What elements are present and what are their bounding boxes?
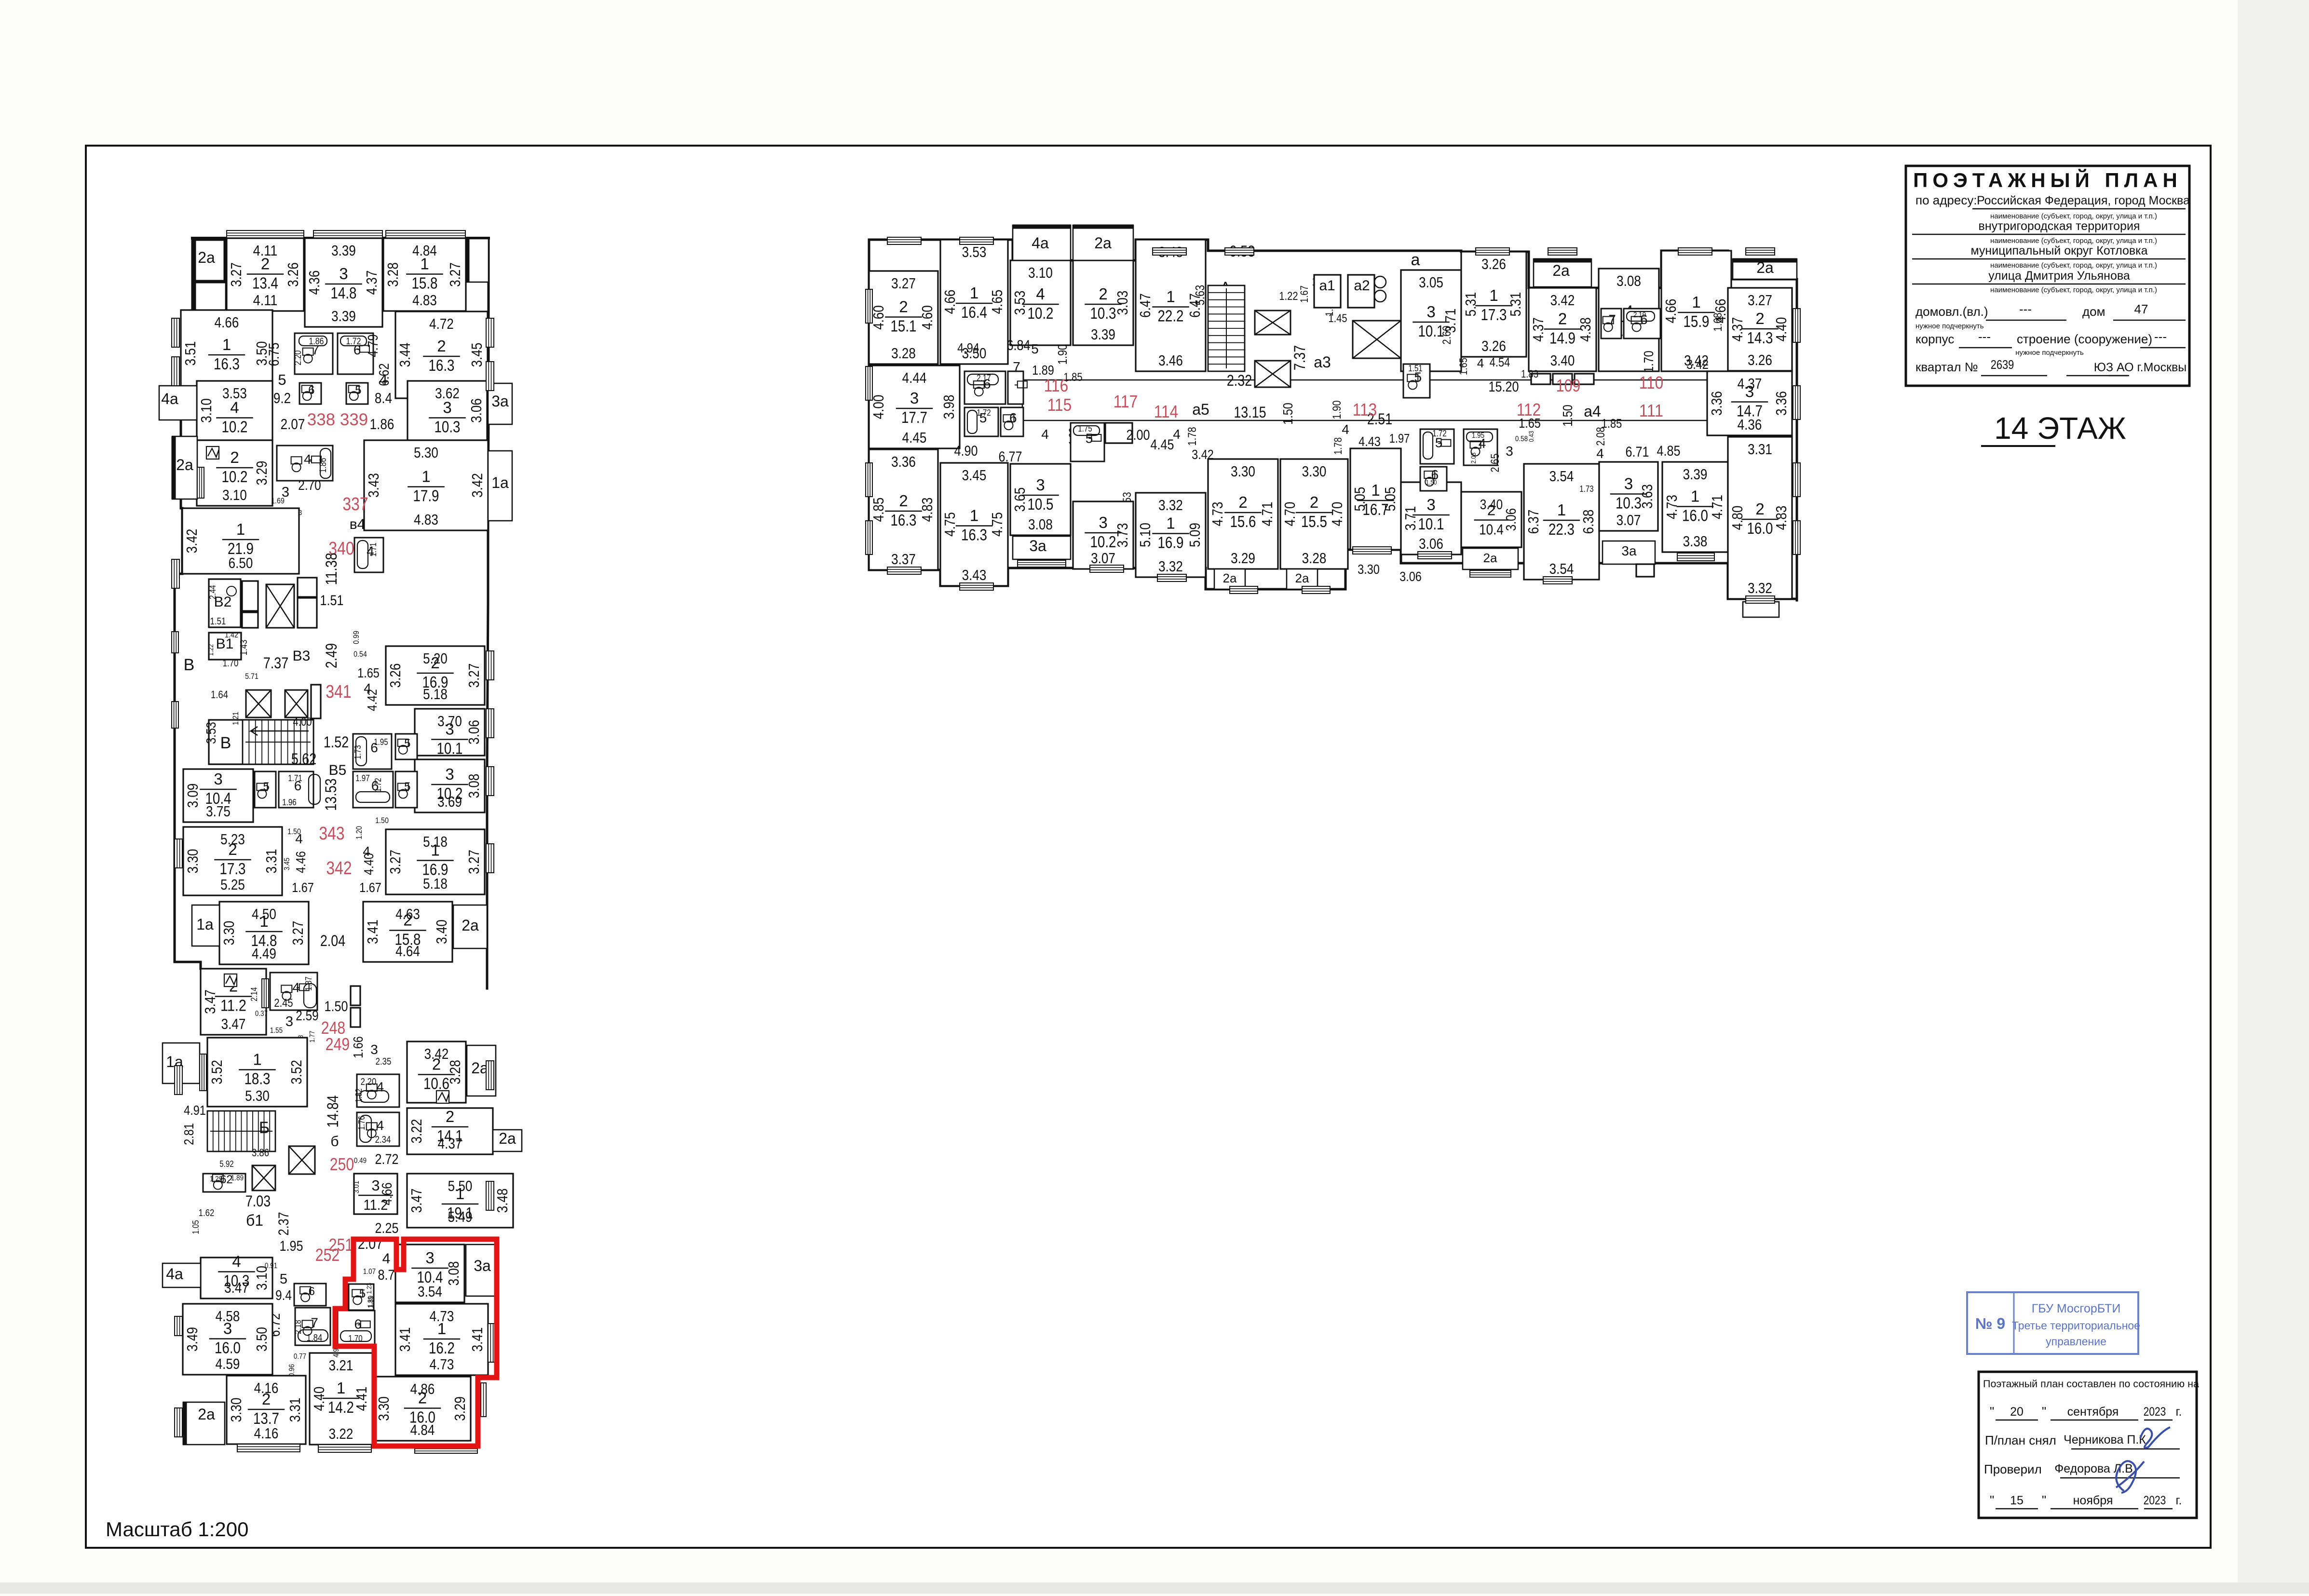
- svg-text:3.28: 3.28: [447, 1060, 463, 1084]
- svg-text:4а: 4а: [1032, 234, 1049, 252]
- svg-text:1.75: 1.75: [1078, 424, 1092, 433]
- svg-text:3.07: 3.07: [1091, 550, 1115, 567]
- svg-text:15.1: 15.1: [891, 317, 917, 335]
- svg-text:нужное подчеркнуть: нужное подчеркнуть: [1915, 322, 1984, 330]
- svg-text:5.23: 5.23: [220, 831, 245, 848]
- svg-text:3.31: 3.31: [263, 849, 280, 874]
- svg-text:1.96: 1.96: [282, 798, 296, 807]
- svg-text:17.3: 17.3: [1481, 306, 1507, 324]
- svg-text:3.08: 3.08: [1616, 272, 1641, 289]
- svg-text:а2: а2: [1354, 278, 1370, 294]
- svg-text:4.91: 4.91: [184, 1103, 206, 1118]
- svg-text:2.00: 2.00: [1126, 427, 1150, 443]
- svg-text:3.08: 3.08: [445, 1261, 462, 1286]
- svg-text:5.71: 5.71: [245, 672, 258, 681]
- svg-text:16.3: 16.3: [891, 511, 917, 529]
- svg-text:дом: дом: [2082, 304, 2105, 319]
- svg-text:3.30: 3.30: [184, 849, 201, 874]
- svg-text:1.51: 1.51: [210, 616, 226, 627]
- svg-text:3.43: 3.43: [962, 567, 987, 583]
- svg-text:6.47: 6.47: [1137, 293, 1154, 318]
- svg-text:Масштаб 1:200: Масштаб 1:200: [106, 1518, 248, 1541]
- svg-text:3.07: 3.07: [1616, 512, 1641, 528]
- svg-text:9.2: 9.2: [273, 390, 291, 406]
- svg-text:1: 1: [970, 284, 978, 302]
- svg-text:2.03: 2.03: [1469, 452, 1477, 463]
- svg-text:Федорова Л.В.: Федорова Л.В.: [2054, 1462, 2136, 1475]
- svg-text:3.30: 3.30: [220, 921, 237, 946]
- svg-text:4: 4: [1342, 422, 1349, 437]
- svg-text:16.9: 16.9: [1158, 534, 1184, 552]
- svg-text:1.67: 1.67: [359, 880, 381, 895]
- svg-text:0.49: 0.49: [354, 1157, 367, 1165]
- svg-text:1а: 1а: [196, 916, 214, 933]
- svg-text:5.50: 5.50: [448, 1177, 473, 1194]
- svg-text:3.27: 3.27: [228, 262, 244, 287]
- svg-text:3: 3: [1036, 476, 1045, 494]
- svg-text:3.30: 3.30: [1231, 463, 1255, 480]
- svg-text:В5: В5: [329, 762, 347, 778]
- svg-text:6.71: 6.71: [1625, 444, 1649, 460]
- svg-text:5.92: 5.92: [219, 1159, 233, 1169]
- svg-text:3.98: 3.98: [940, 395, 957, 419]
- svg-text:0.43: 0.43: [1527, 431, 1535, 442]
- svg-text:1.07: 1.07: [363, 1268, 376, 1276]
- svg-text:5.62: 5.62: [291, 750, 316, 768]
- svg-text:4: 4: [232, 1253, 241, 1271]
- svg-text:4.45: 4.45: [902, 429, 927, 446]
- svg-text:2а: 2а: [198, 1406, 215, 1423]
- svg-text:1.72: 1.72: [346, 337, 361, 347]
- svg-text:3.53: 3.53: [204, 722, 218, 744]
- svg-text:П/план снял: П/план снял: [1985, 1433, 2056, 1447]
- svg-text:10.2: 10.2: [222, 418, 248, 436]
- svg-text:1.86: 1.86: [318, 458, 328, 473]
- svg-text:1.50: 1.50: [1560, 405, 1575, 427]
- svg-text:4.85: 4.85: [870, 498, 887, 522]
- svg-text:1.50: 1.50: [287, 827, 301, 836]
- svg-text:3.44: 3.44: [396, 343, 413, 367]
- svg-text:3.40: 3.40: [433, 920, 450, 944]
- svg-text:6: 6: [354, 1316, 362, 1331]
- svg-text:1.70: 1.70: [1641, 351, 1656, 373]
- svg-text:а4: а4: [1584, 403, 1601, 420]
- svg-text:1.69: 1.69: [271, 496, 285, 505]
- svg-text:муниципальный округ Котловка: муниципальный округ Котловка: [1970, 244, 2147, 257]
- svg-text:114: 114: [1154, 402, 1178, 421]
- svg-text:Б: Б: [259, 1119, 270, 1137]
- svg-text:внутригородская территория: внутригородская территория: [1979, 219, 2140, 233]
- svg-text:В3: В3: [293, 648, 311, 664]
- svg-text:13.53: 13.53: [322, 778, 340, 811]
- svg-text:1.71: 1.71: [368, 542, 378, 556]
- svg-text:4: 4: [382, 1251, 391, 1267]
- svg-text:2.32: 2.32: [1227, 372, 1252, 389]
- svg-text:1: 1: [337, 1379, 345, 1397]
- svg-text:3.49: 3.49: [184, 1327, 201, 1352]
- svg-text:1.22: 1.22: [1279, 290, 1298, 303]
- svg-text:3: 3: [285, 1014, 293, 1029]
- svg-text:4.16: 4.16: [254, 1380, 279, 1396]
- svg-text:0.58: 0.58: [1515, 435, 1528, 443]
- svg-text:4.83: 4.83: [919, 498, 936, 522]
- svg-text:3.29: 3.29: [1231, 550, 1255, 567]
- svg-text:3.05: 3.05: [1419, 274, 1443, 291]
- svg-text:18.3: 18.3: [244, 1070, 271, 1088]
- svg-text:3.42: 3.42: [424, 1045, 449, 1062]
- svg-text:4.42: 4.42: [365, 689, 380, 711]
- svg-text:3.26: 3.26: [387, 663, 404, 688]
- svg-text:3.28: 3.28: [384, 262, 401, 287]
- svg-text:3.21: 3.21: [329, 1357, 353, 1374]
- svg-text:3.27: 3.27: [289, 921, 306, 946]
- svg-text:": ": [2042, 1493, 2046, 1507]
- svg-text:14.3: 14.3: [1747, 329, 1773, 347]
- svg-text:2.20: 2.20: [361, 1077, 377, 1087]
- svg-text:1.85: 1.85: [1063, 371, 1082, 384]
- svg-text:4а: 4а: [166, 1265, 183, 1283]
- svg-text:3.22: 3.22: [408, 1119, 425, 1144]
- svg-text:3.06: 3.06: [1419, 535, 1443, 552]
- svg-text:Черникова П.К.: Черникова П.К.: [2064, 1433, 2149, 1447]
- svg-text:4.75: 4.75: [941, 512, 958, 537]
- svg-text:1.50: 1.50: [1426, 478, 1437, 486]
- svg-text:3.42: 3.42: [183, 529, 200, 554]
- svg-text:14.8: 14.8: [331, 284, 357, 302]
- svg-text:5.18: 5.18: [423, 686, 448, 703]
- svg-text:3а: 3а: [491, 392, 509, 410]
- svg-text:7.37: 7.37: [1291, 345, 1308, 370]
- svg-text:3.10: 3.10: [1028, 264, 1053, 281]
- svg-text:2: 2: [230, 448, 239, 466]
- svg-text:1.43: 1.43: [239, 640, 249, 656]
- svg-text:9.4: 9.4: [275, 1288, 292, 1303]
- svg-text:4.37: 4.37: [363, 271, 380, 295]
- svg-text:3.48: 3.48: [494, 1189, 511, 1213]
- svg-text:2а: 2а: [1483, 551, 1497, 565]
- svg-text:2: 2: [446, 1108, 454, 1125]
- svg-text:2639: 2639: [1991, 357, 2014, 372]
- svg-text:4.73: 4.73: [430, 1356, 454, 1373]
- svg-text:4: 4: [1041, 427, 1049, 442]
- svg-text:7.37: 7.37: [263, 654, 288, 672]
- svg-text:5: 5: [280, 1271, 287, 1287]
- svg-text:4.66: 4.66: [380, 1182, 395, 1205]
- svg-text:1.78: 1.78: [1332, 437, 1344, 455]
- svg-text:4.11: 4.11: [253, 242, 278, 259]
- svg-text:5.25: 5.25: [220, 876, 245, 893]
- svg-text:1.50: 1.50: [375, 816, 389, 825]
- svg-text:1.65: 1.65: [357, 665, 380, 680]
- svg-text:3.31: 3.31: [286, 1398, 303, 1422]
- svg-text:1.86: 1.86: [370, 416, 394, 433]
- svg-text:---: ---: [2019, 302, 2032, 316]
- svg-text:6: 6: [308, 384, 314, 397]
- svg-text:10.2: 10.2: [1028, 304, 1054, 322]
- svg-text:3: 3: [445, 765, 454, 783]
- svg-text:16.4: 16.4: [961, 303, 987, 321]
- svg-text:3.51: 3.51: [182, 341, 199, 366]
- svg-text:2023: 2023: [2144, 1494, 2166, 1507]
- svg-text:10.2: 10.2: [222, 468, 248, 486]
- svg-text:3.31: 3.31: [1748, 441, 1772, 458]
- svg-text:1.22: 1.22: [207, 644, 215, 656]
- svg-text:4.90: 4.90: [954, 443, 978, 459]
- svg-text:10.3: 10.3: [1090, 304, 1116, 322]
- svg-text:3.09: 3.09: [184, 784, 201, 808]
- svg-text:1: 1: [1692, 293, 1700, 311]
- svg-text:4.60: 4.60: [919, 305, 936, 330]
- svg-text:3.28: 3.28: [1302, 550, 1327, 567]
- svg-text:3.27: 3.27: [465, 663, 482, 688]
- svg-text:1.66: 1.66: [351, 1036, 366, 1058]
- svg-text:2.70: 2.70: [298, 478, 321, 493]
- svg-text:3.42: 3.42: [1550, 292, 1575, 309]
- svg-text:2а: 2а: [198, 249, 215, 266]
- svg-text:4.94: 4.94: [957, 340, 979, 355]
- svg-text:3.41: 3.41: [364, 920, 381, 944]
- svg-text:2а: 2а: [499, 1130, 516, 1147]
- svg-text:3.03: 3.03: [1114, 291, 1131, 315]
- svg-text:3.47: 3.47: [202, 989, 218, 1014]
- svg-text:4.70: 4.70: [1281, 502, 1298, 527]
- svg-text:115: 115: [1047, 395, 1072, 415]
- svg-text:3.10: 3.10: [222, 487, 247, 503]
- svg-text:4.80: 4.80: [1729, 506, 1746, 530]
- svg-text:улица Дмитрия Ульянова: улица Дмитрия Ульянова: [1988, 269, 2130, 283]
- svg-text:10.3: 10.3: [1616, 494, 1642, 512]
- svg-text:2: 2: [1310, 493, 1318, 511]
- svg-text:1.68: 1.68: [1711, 312, 1725, 331]
- svg-text:4.71: 4.71: [1259, 502, 1276, 527]
- svg-text:2023: 2023: [2144, 1405, 2166, 1419]
- svg-text:8.4: 8.4: [375, 390, 392, 406]
- svg-text:1.77: 1.77: [308, 1031, 316, 1043]
- svg-text:наименование (субъект, город,: наименование (субъект, город, округ, ули…: [1990, 286, 2157, 294]
- svg-text:4.65: 4.65: [989, 290, 1005, 314]
- svg-text:---: ---: [1978, 329, 1991, 344]
- svg-text:3: 3: [371, 1177, 380, 1194]
- svg-text:2.60: 2.60: [1440, 325, 1453, 344]
- svg-text:3а: 3а: [474, 1257, 491, 1274]
- svg-text:14.84: 14.84: [324, 1095, 341, 1127]
- svg-text:1.65: 1.65: [1457, 358, 1469, 375]
- svg-text:2.17: 2.17: [977, 373, 991, 383]
- svg-text:4.59: 4.59: [216, 1355, 240, 1372]
- svg-text:2а: 2а: [176, 456, 193, 473]
- svg-text:3.73: 3.73: [1114, 523, 1131, 548]
- svg-text:1.70: 1.70: [223, 658, 239, 669]
- svg-text:4.73: 4.73: [1209, 502, 1226, 527]
- svg-text:2: 2: [1755, 500, 1764, 518]
- svg-text:2.37: 2.37: [276, 1212, 292, 1235]
- svg-text:ПОЭТАЖНЫЙ ПЛАН: ПОЭТАЖНЫЙ ПЛАН: [1913, 168, 2182, 191]
- svg-text:5: 5: [404, 737, 410, 750]
- svg-text:2.35: 2.35: [376, 1056, 392, 1067]
- svg-text:4.37: 4.37: [1729, 317, 1746, 342]
- svg-text:1.97: 1.97: [355, 773, 369, 783]
- svg-text:сентября: сентября: [2067, 1405, 2119, 1419]
- svg-text:3.42: 3.42: [469, 473, 486, 498]
- svg-text:3.47: 3.47: [224, 1279, 249, 1296]
- svg-text:3.30: 3.30: [375, 1396, 392, 1421]
- svg-text:4.38: 4.38: [1577, 317, 1594, 342]
- svg-text:4.66: 4.66: [941, 290, 958, 314]
- svg-text:4.73: 4.73: [1663, 495, 1680, 519]
- svg-text:3.63: 3.63: [1639, 484, 1656, 509]
- svg-text:3.41: 3.41: [396, 1327, 413, 1352]
- svg-text:3.10: 3.10: [198, 398, 215, 423]
- svg-text:4.11: 4.11: [253, 292, 278, 309]
- svg-text:3.75: 3.75: [206, 803, 231, 820]
- svg-text:14 ЭТАЖ: 14 ЭТАЖ: [1994, 411, 2126, 446]
- svg-text:3.32: 3.32: [1158, 558, 1183, 575]
- svg-text:2.04: 2.04: [320, 932, 345, 949]
- svg-text:4.71: 4.71: [1709, 495, 1725, 519]
- svg-text:3: 3: [1426, 303, 1435, 321]
- svg-text:1.50: 1.50: [1280, 403, 1295, 425]
- svg-text:1: 1: [253, 1051, 261, 1069]
- svg-text:1.73: 1.73: [1579, 484, 1593, 494]
- svg-text:1: 1: [1371, 481, 1380, 499]
- svg-text:1.84: 1.84: [307, 1333, 323, 1343]
- svg-text:10.4: 10.4: [1479, 521, 1504, 538]
- svg-text:4.66: 4.66: [215, 314, 239, 331]
- svg-text:2а: 2а: [1295, 571, 1309, 585]
- svg-text:4.86: 4.86: [410, 1380, 435, 1397]
- svg-text:3: 3: [425, 1249, 434, 1267]
- svg-text:3.47: 3.47: [221, 1015, 246, 1032]
- svg-text:15: 15: [2010, 1494, 2024, 1507]
- svg-text:0.99: 0.99: [352, 631, 361, 644]
- svg-text:4.54: 4.54: [1490, 355, 1510, 369]
- svg-text:4.83: 4.83: [1773, 506, 1790, 530]
- svg-text:1.65: 1.65: [1519, 416, 1541, 431]
- svg-text:ЮЗ АО г.Москвы: ЮЗ АО г.Москвы: [2094, 361, 2187, 374]
- svg-text:": ": [1990, 1493, 1994, 1507]
- svg-text:2а: 2а: [1094, 234, 1112, 252]
- svg-text:4.85: 4.85: [1657, 443, 1680, 459]
- svg-text:4.44: 4.44: [902, 369, 927, 386]
- svg-text:3.27: 3.27: [891, 275, 916, 292]
- svg-text:0.96: 0.96: [288, 1364, 296, 1377]
- svg-text:341: 341: [326, 682, 351, 702]
- svg-text:---: ---: [2154, 329, 2167, 344]
- svg-text:1.72: 1.72: [977, 408, 991, 418]
- svg-text:Проверил: Проверил: [1984, 1462, 2042, 1476]
- svg-text:4: 4: [377, 1079, 384, 1094]
- svg-text:1.97: 1.97: [1389, 431, 1410, 446]
- svg-text:8.7: 8.7: [378, 1267, 394, 1283]
- svg-text:2.49: 2.49: [323, 643, 340, 668]
- svg-text:4.40: 4.40: [1773, 317, 1790, 342]
- svg-text:15.8: 15.8: [412, 274, 438, 292]
- svg-text:5.31: 5.31: [1507, 292, 1524, 317]
- svg-text:10.5: 10.5: [1028, 495, 1054, 513]
- svg-text:2: 2: [1099, 285, 1107, 303]
- svg-text:2: 2: [899, 298, 908, 316]
- svg-text:3.70: 3.70: [437, 713, 462, 730]
- svg-text:2.72: 2.72: [375, 1151, 398, 1167]
- svg-text:3а: 3а: [1621, 543, 1637, 558]
- svg-text:": ": [2042, 1404, 2046, 1419]
- svg-text:4а: 4а: [161, 390, 178, 407]
- svg-text:13.15: 13.15: [1234, 404, 1266, 421]
- svg-text:2.81: 2.81: [181, 1123, 196, 1145]
- svg-text:5: 5: [1031, 341, 1039, 356]
- svg-text:3: 3: [910, 389, 919, 407]
- svg-text:1.55: 1.55: [270, 1027, 283, 1035]
- svg-text:1.95: 1.95: [1472, 432, 1484, 440]
- svg-text:3.71: 3.71: [1402, 506, 1419, 531]
- svg-text:3.39: 3.39: [1091, 326, 1115, 343]
- svg-text:4.64: 4.64: [395, 943, 420, 960]
- svg-text:4.37: 4.37: [438, 1135, 462, 1152]
- svg-text:249: 249: [326, 1034, 350, 1054]
- svg-text:3.27: 3.27: [1748, 292, 1772, 309]
- svg-text:2.34: 2.34: [375, 1135, 391, 1145]
- svg-text:1.70: 1.70: [348, 1334, 362, 1343]
- svg-text:4.50: 4.50: [252, 906, 276, 922]
- svg-text:4.40: 4.40: [361, 853, 376, 875]
- svg-text:3.36: 3.36: [1773, 391, 1790, 416]
- svg-text:3.54: 3.54: [1549, 468, 1574, 485]
- svg-text:4.84: 4.84: [412, 242, 437, 259]
- svg-text:4.16: 4.16: [254, 1425, 279, 1442]
- svg-text:5.49: 5.49: [448, 1208, 473, 1225]
- svg-text:4.73: 4.73: [430, 1308, 454, 1325]
- svg-text:2а: 2а: [1223, 571, 1237, 585]
- svg-text:16.0: 16.0: [1682, 507, 1708, 525]
- svg-text:5.30: 5.30: [245, 1087, 270, 1104]
- svg-text:1.20: 1.20: [354, 826, 364, 839]
- svg-text:5.18: 5.18: [423, 875, 448, 892]
- svg-text:1а: 1а: [491, 474, 509, 491]
- svg-text:ГБУ МосгорБТИ: ГБУ МосгорБТИ: [2032, 1302, 2121, 1315]
- svg-text:3.26: 3.26: [1481, 338, 1506, 354]
- svg-text:3.01: 3.01: [353, 1181, 361, 1193]
- svg-text:4.37: 4.37: [1530, 317, 1547, 342]
- svg-text:16.0: 16.0: [1747, 519, 1773, 537]
- svg-text:7.03: 7.03: [245, 1192, 271, 1210]
- svg-text:1.45: 1.45: [1328, 312, 1347, 325]
- svg-text:3.46: 3.46: [1158, 352, 1183, 369]
- svg-text:342: 342: [326, 858, 352, 879]
- svg-text:1.90: 1.90: [1331, 400, 1344, 419]
- svg-text:3.06: 3.06: [468, 398, 485, 423]
- svg-text:16.3: 16.3: [214, 355, 240, 373]
- svg-text:11.38: 11.38: [323, 553, 340, 585]
- svg-text:1: 1: [222, 336, 231, 353]
- svg-text:1.51: 1.51: [1408, 364, 1422, 373]
- svg-text:3.39: 3.39: [331, 242, 356, 259]
- svg-text:1.95: 1.95: [374, 737, 388, 747]
- svg-text:10.3: 10.3: [435, 418, 461, 436]
- svg-text:3.29: 3.29: [253, 461, 270, 486]
- svg-text:5.63: 5.63: [1193, 285, 1207, 306]
- svg-text:3.39: 3.39: [331, 308, 356, 325]
- svg-text:3: 3: [1426, 496, 1435, 514]
- svg-text:а5: а5: [1192, 401, 1209, 418]
- svg-text:3.37: 3.37: [891, 551, 916, 568]
- svg-text:16.3: 16.3: [961, 526, 987, 544]
- svg-text:6.84: 6.84: [1006, 338, 1030, 353]
- svg-text:2а: 2а: [462, 917, 479, 934]
- svg-text:4: 4: [292, 980, 300, 995]
- svg-text:6: 6: [309, 1285, 315, 1298]
- svg-text:1.23: 1.23: [365, 1283, 373, 1294]
- svg-text:2: 2: [1755, 310, 1764, 327]
